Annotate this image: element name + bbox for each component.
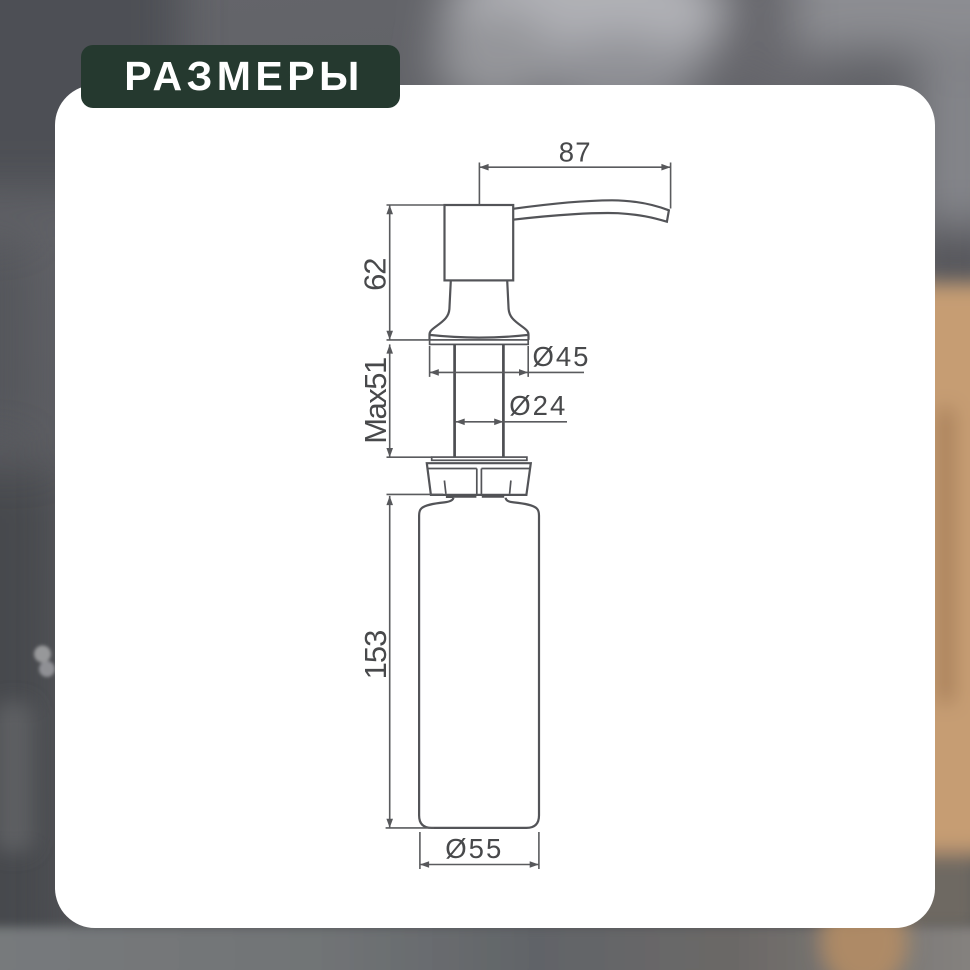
svg-text:62: 62 bbox=[358, 258, 393, 290]
svg-text:Ø45: Ø45 bbox=[533, 341, 591, 372]
svg-text:Max51: Max51 bbox=[358, 358, 393, 444]
svg-text:Ø24: Ø24 bbox=[509, 390, 567, 421]
svg-text:87: 87 bbox=[559, 137, 592, 168]
svg-text:Ø55: Ø55 bbox=[445, 833, 503, 864]
svg-text:153: 153 bbox=[358, 631, 393, 680]
